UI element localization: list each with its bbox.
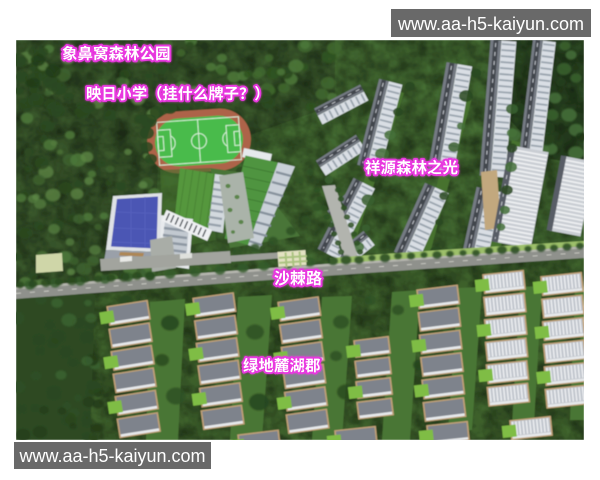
svg-text:www.aa-h5-kaiyun.com: www.aa-h5-kaiyun.com (397, 14, 584, 34)
svg-text:www.aa-h5-kaiyun.com: www.aa-h5-kaiyun.com (18, 446, 205, 466)
